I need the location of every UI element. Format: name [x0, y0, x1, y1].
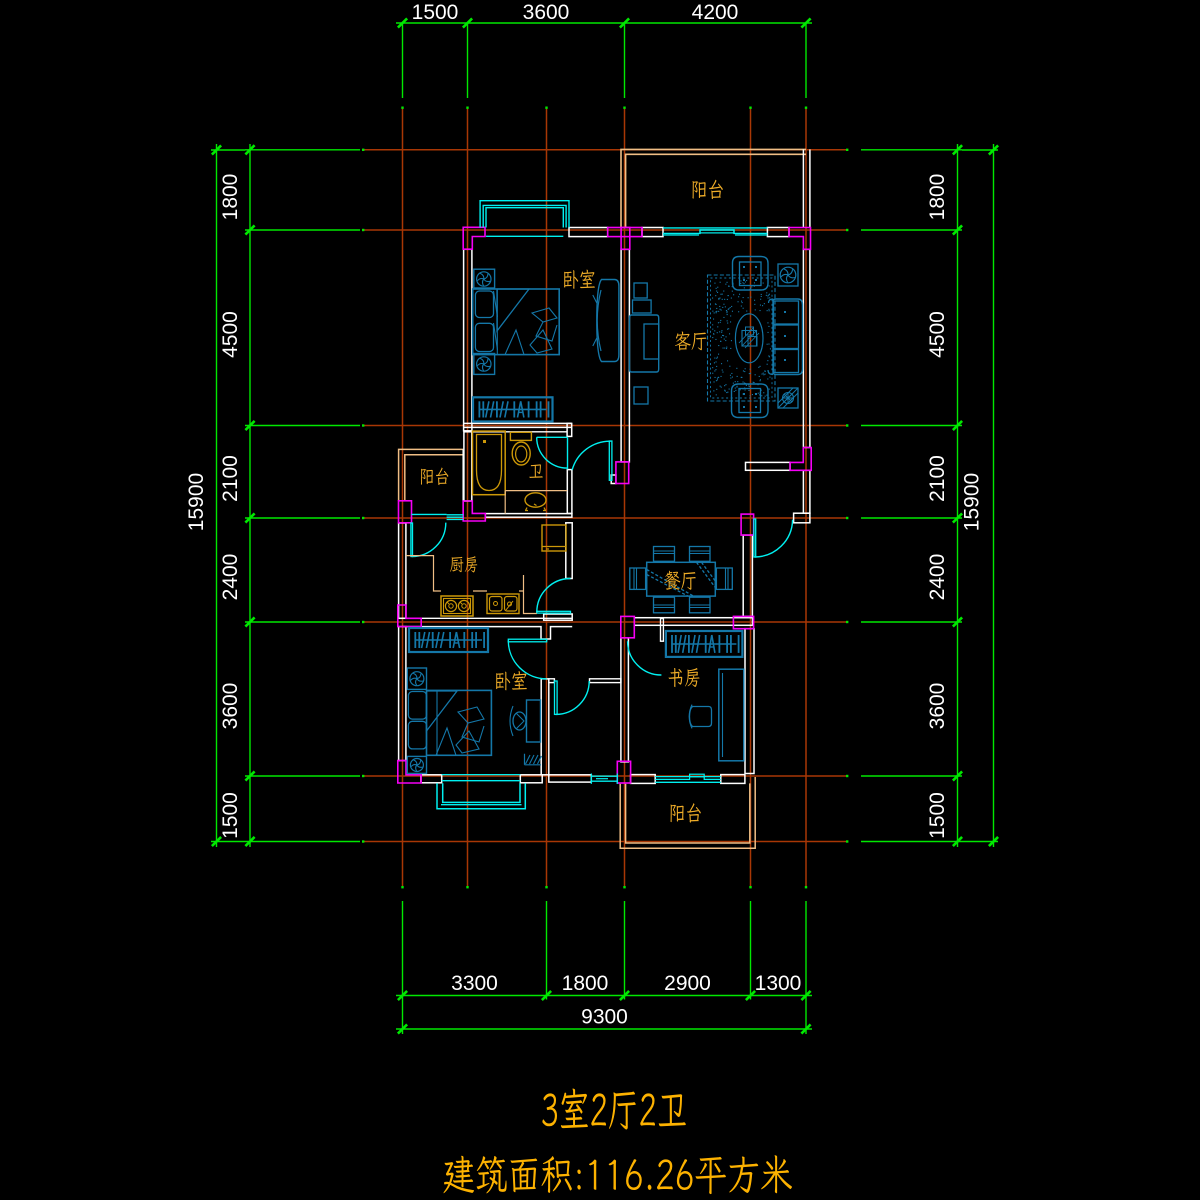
svg-text:3600: 3600	[219, 683, 242, 730]
svg-text:1500: 1500	[412, 1, 459, 24]
svg-text:1800: 1800	[926, 174, 949, 221]
svg-text:2100: 2100	[219, 455, 242, 502]
svg-text:2900: 2900	[664, 972, 711, 995]
svg-text:1800: 1800	[219, 174, 242, 221]
svg-text:9300: 9300	[581, 1006, 628, 1029]
svg-text:3600: 3600	[523, 1, 570, 24]
svg-text:3600: 3600	[926, 683, 949, 730]
svg-text:2400: 2400	[219, 554, 242, 601]
svg-text:15900: 15900	[961, 473, 984, 531]
svg-text:1500: 1500	[926, 792, 949, 839]
svg-text:1500: 1500	[219, 792, 242, 839]
svg-text:4500: 4500	[926, 311, 949, 358]
svg-text:4500: 4500	[219, 311, 242, 358]
svg-text:15900: 15900	[185, 473, 208, 531]
svg-text:4200: 4200	[692, 1, 739, 24]
svg-text:2400: 2400	[926, 554, 949, 601]
svg-text:1300: 1300	[755, 972, 802, 995]
svg-text:3300: 3300	[451, 972, 498, 995]
svg-text:2100: 2100	[926, 455, 949, 502]
svg-text:1800: 1800	[562, 972, 609, 995]
